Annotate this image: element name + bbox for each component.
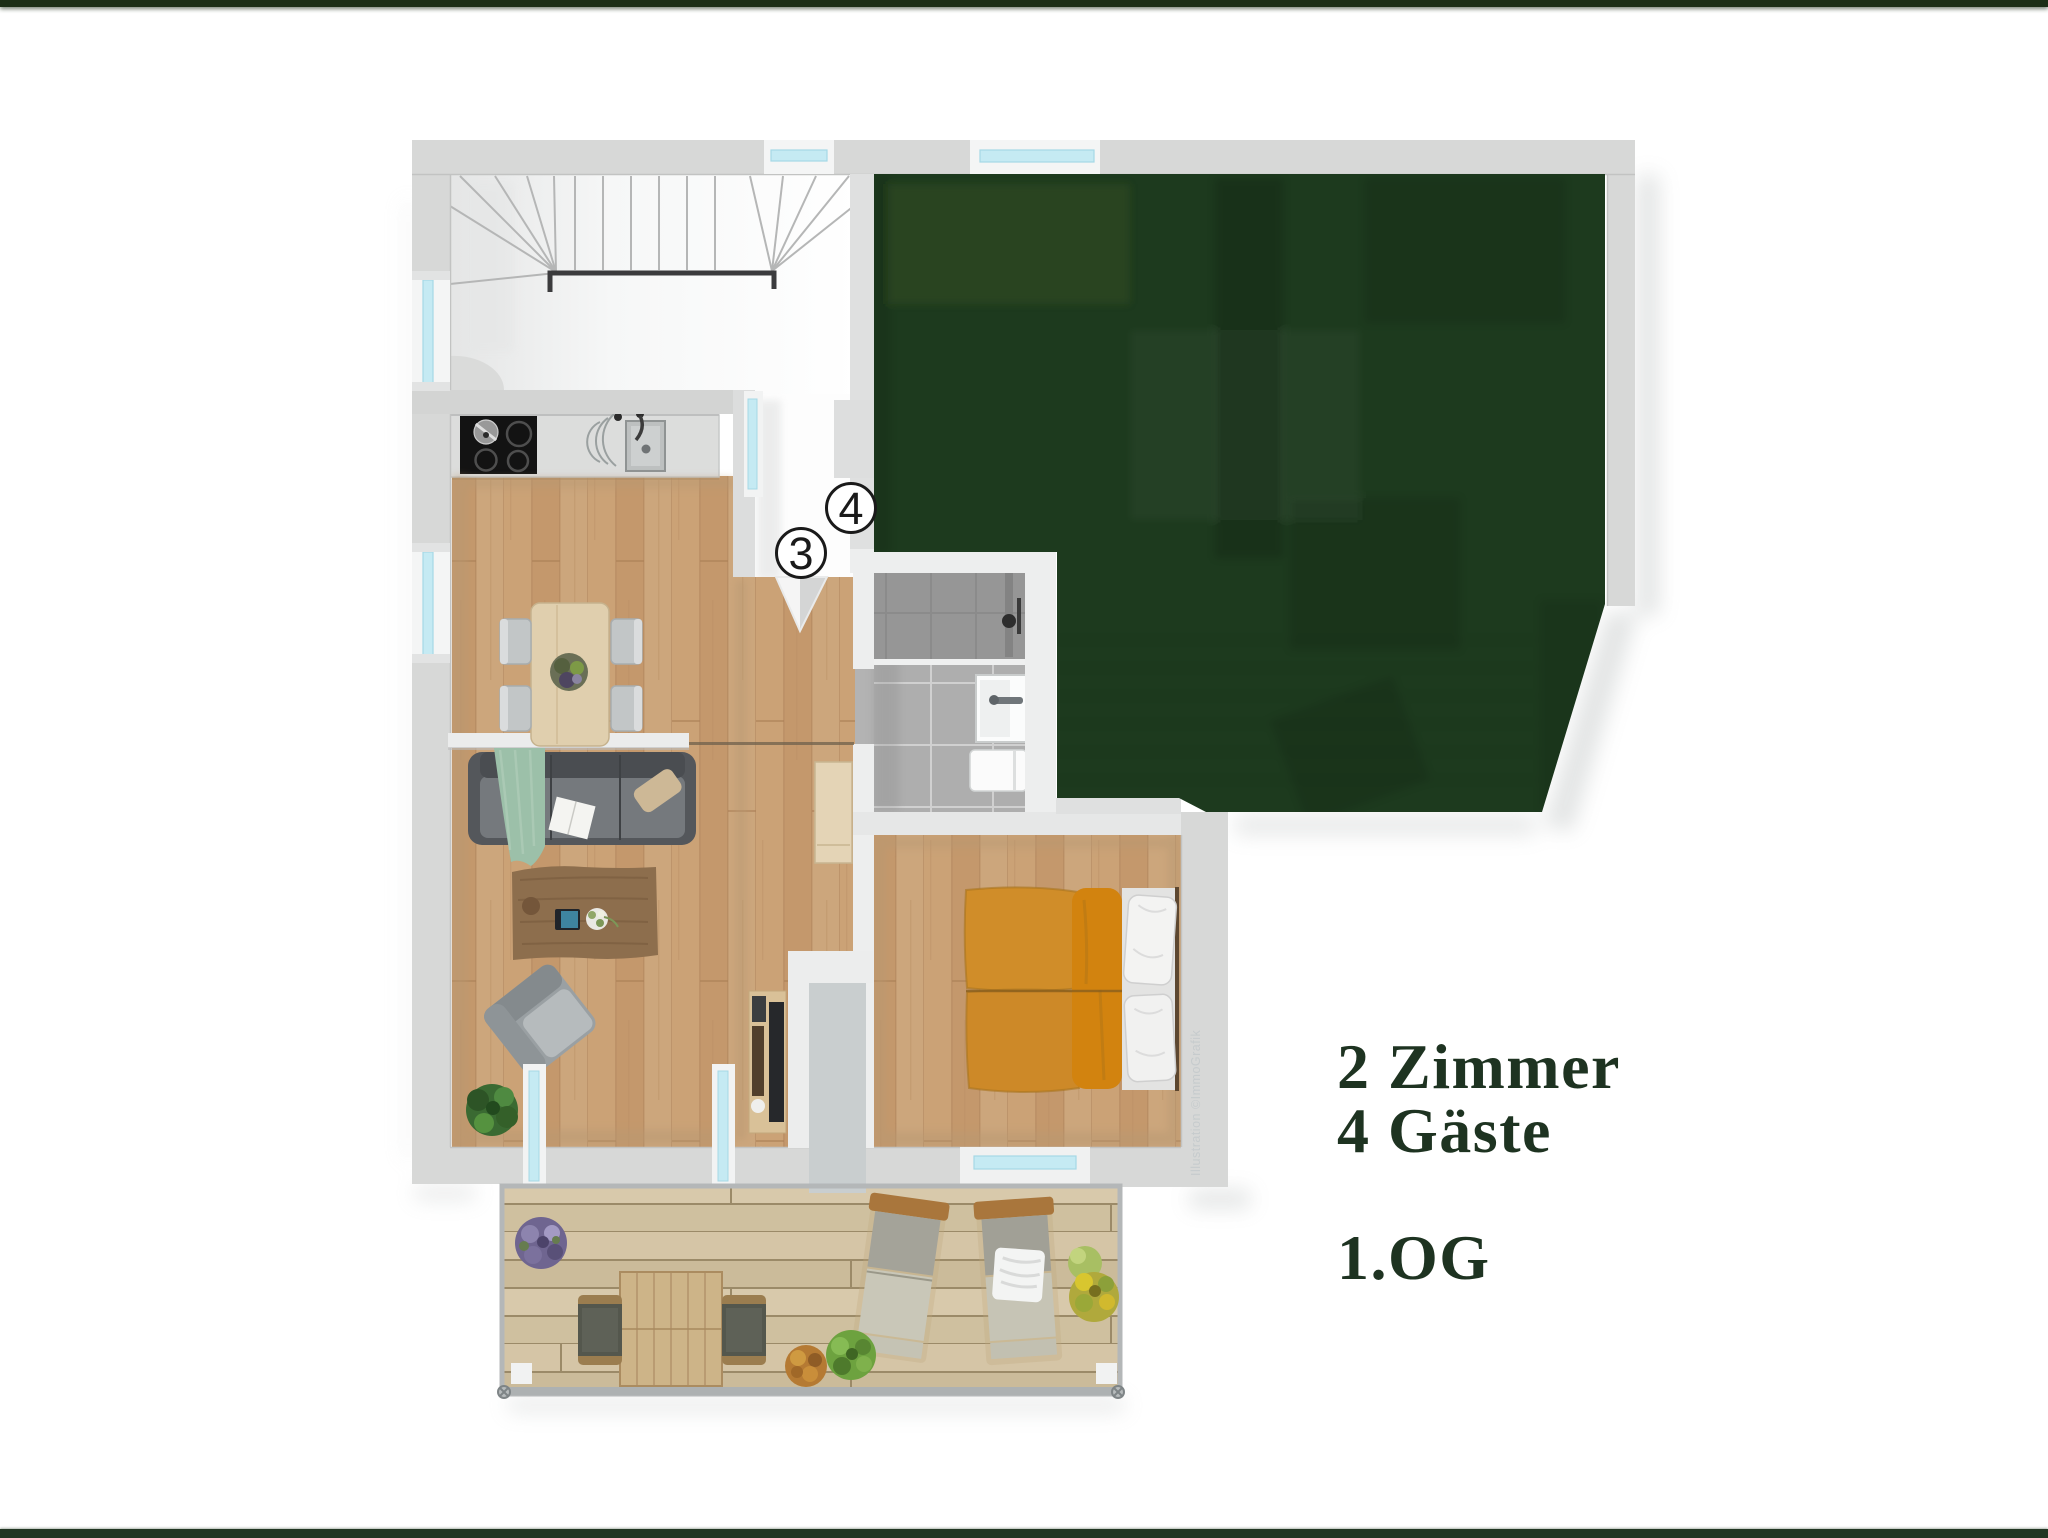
svg-text:3: 3 (788, 528, 813, 579)
svg-text:4: 4 (838, 483, 863, 534)
svg-text:Illustration ©ImmoGrafik: Illustration ©ImmoGrafik (1189, 1030, 1203, 1176)
